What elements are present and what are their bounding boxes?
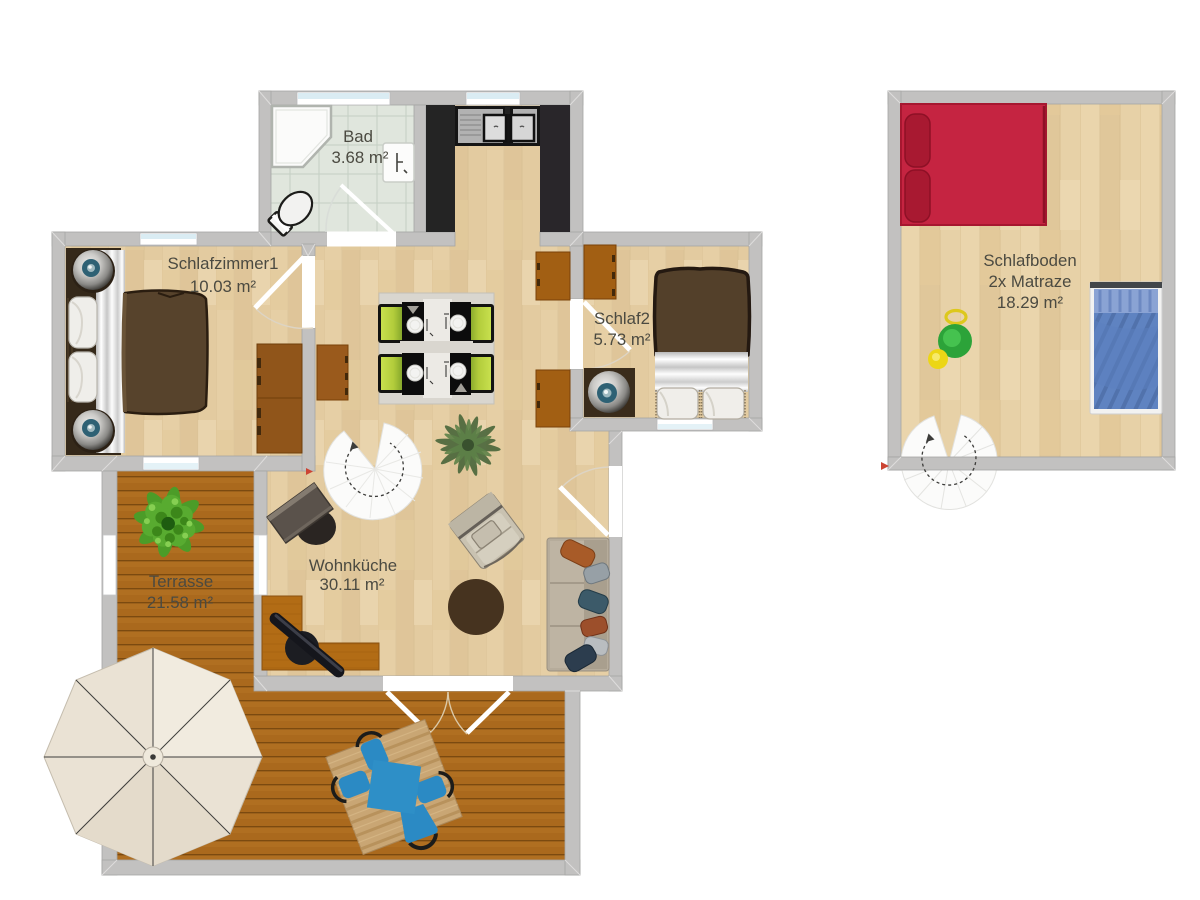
svg-text:30.11 m²: 30.11 m²	[320, 575, 385, 594]
svg-text:Schlafzimmer1: Schlafzimmer1	[168, 254, 279, 273]
svg-text:Schlaf2: Schlaf2	[594, 309, 650, 328]
svg-text:Bad: Bad	[343, 127, 373, 146]
svg-text:Schlafboden: Schlafboden	[983, 251, 1076, 270]
svg-text:3.68 m²: 3.68 m²	[332, 148, 389, 167]
svg-text:2x Matraze: 2x Matraze	[988, 272, 1071, 291]
svg-text:10.03 m²: 10.03 m²	[190, 277, 257, 296]
svg-text:21.58 m²: 21.58 m²	[147, 593, 214, 612]
svg-text:5.73 m²: 5.73 m²	[594, 330, 651, 349]
svg-text:Wohnküche: Wohnküche	[309, 556, 397, 575]
svg-text:18.29 m²: 18.29 m²	[997, 293, 1064, 312]
svg-text:Terrasse: Terrasse	[149, 572, 213, 591]
